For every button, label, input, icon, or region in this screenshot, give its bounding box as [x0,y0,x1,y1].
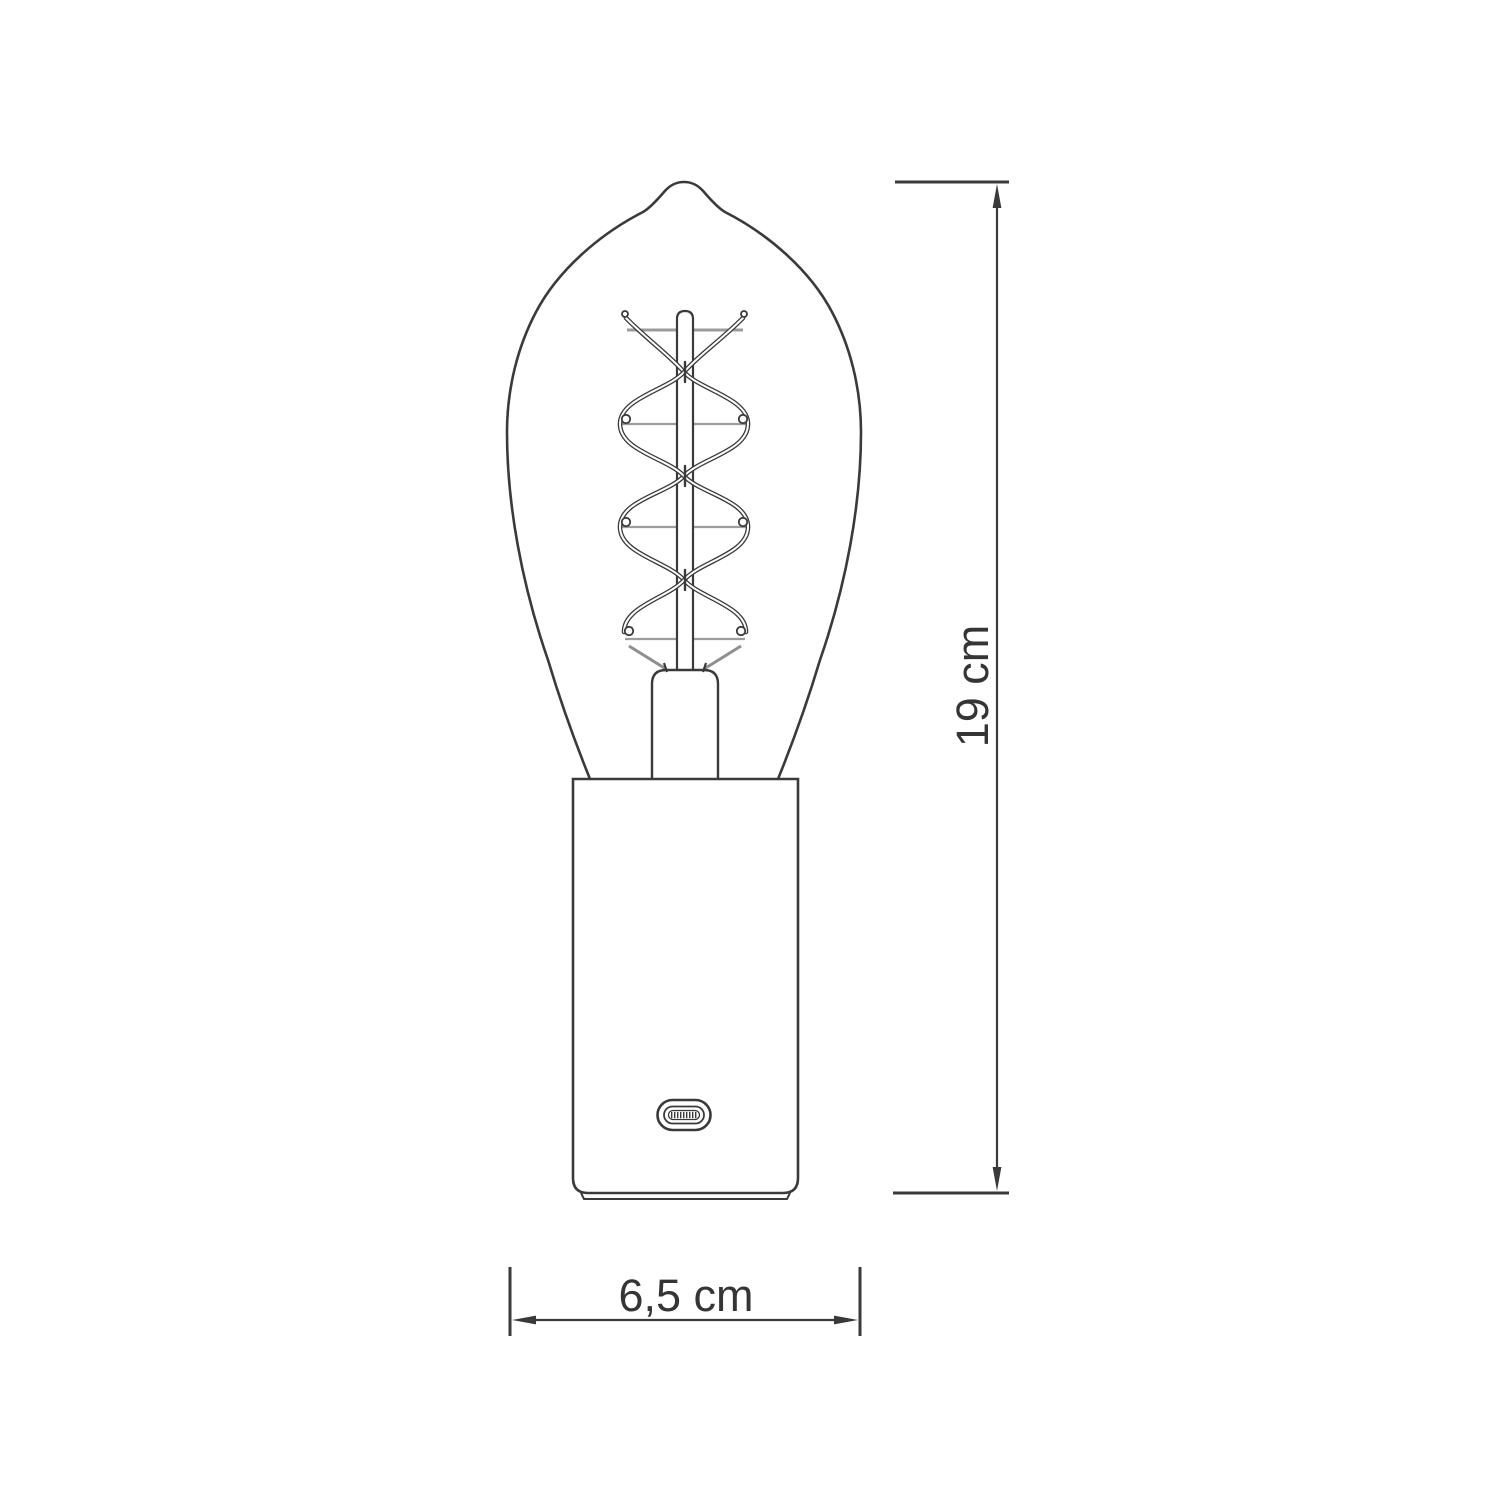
filament-lead-wire [704,646,741,669]
arrow-left-icon [512,1316,536,1325]
arrow-down-icon [993,1167,1002,1191]
filament-bead [737,627,745,635]
dimension-diagram-lamp: 19 cm 6,5 cm [0,0,1500,1500]
filament-bead [625,627,633,635]
filament-hook [622,311,628,317]
filament-lead-wire [629,646,666,669]
arrow-right-icon [834,1316,858,1325]
filament-bead [739,415,747,423]
arrow-up-icon [993,184,1002,208]
height-dimension: 19 cm [893,182,1009,1193]
filament-hook [741,311,747,317]
width-dimension: 6,5 cm [510,1267,860,1336]
bulb-socket [652,670,718,779]
filament-bead [622,415,630,423]
filament-bead [622,518,630,526]
width-dimension-label: 6,5 cm [618,1270,753,1321]
height-dimension-label: 19 cm [947,625,998,748]
filament-bead [739,518,747,526]
lamp-technical-drawing: 19 cm 6,5 cm [0,0,1500,1500]
